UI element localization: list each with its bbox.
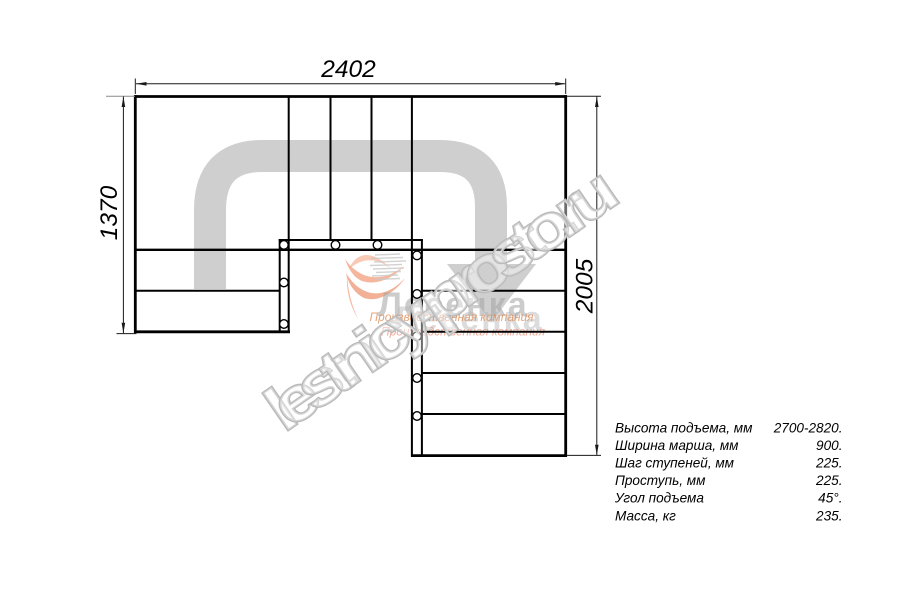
- svg-text:45°.: 45°.: [818, 491, 842, 506]
- svg-text:2402: 2402: [320, 56, 376, 83]
- svg-text:2005: 2005: [572, 258, 599, 314]
- svg-text:2700-2820.: 2700-2820.: [773, 420, 843, 435]
- svg-text:1370: 1370: [96, 185, 123, 240]
- svg-text:Проступь, мм: Проступь, мм: [615, 473, 706, 488]
- svg-text:Высота подъема, мм: Высота подъема, мм: [615, 420, 753, 435]
- svg-text:Масса, кг: Масса, кг: [615, 508, 676, 523]
- svg-text:Ширина марша, мм: Ширина марша, мм: [615, 438, 739, 453]
- svg-text:225.: 225.: [815, 473, 842, 488]
- svg-text:225.: 225.: [815, 456, 842, 471]
- svg-text:900.: 900.: [816, 438, 842, 453]
- svg-text:Угол подъема: Угол подъема: [614, 491, 704, 506]
- svg-text:Шаг ступеней, мм: Шаг ступеней, мм: [615, 456, 735, 471]
- svg-text:235.: 235.: [815, 508, 842, 523]
